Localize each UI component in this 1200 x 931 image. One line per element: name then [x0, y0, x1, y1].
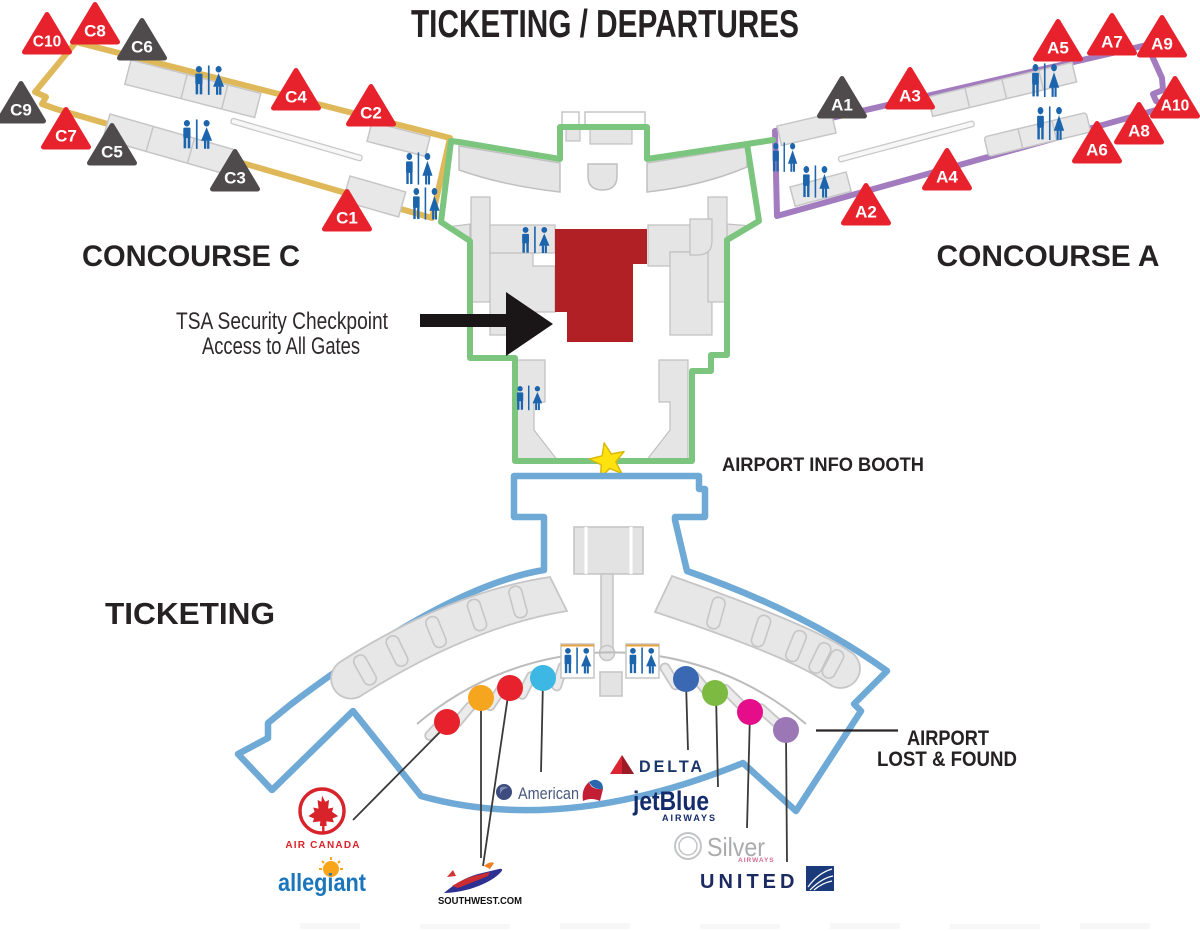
svg-text:C6: C6 [131, 38, 153, 57]
svg-text:C8: C8 [84, 22, 106, 41]
svg-text:A1: A1 [831, 96, 853, 115]
svg-text:AIRWAYS: AIRWAYS [662, 813, 717, 823]
svg-text:C10: C10 [33, 34, 61, 51]
svg-text:CONCOURSE A: CONCOURSE A [937, 240, 1160, 273]
svg-text:AIRPORT: AIRPORT [907, 727, 989, 750]
svg-text:LOST & FOUND: LOST & FOUND [877, 748, 1017, 771]
svg-text:CONCOURSE C: CONCOURSE C [82, 240, 300, 273]
svg-text:UNITED: UNITED [700, 871, 798, 893]
svg-text:AIR CANADA: AIR CANADA [285, 840, 360, 851]
svg-text:C1: C1 [336, 209, 358, 228]
svg-text:TICKETING / DEPARTURES: TICKETING / DEPARTURES [411, 3, 799, 46]
svg-text:Access to All Gates: Access to All Gates [202, 333, 360, 360]
svg-text:A5: A5 [1047, 39, 1069, 58]
svg-text:A2: A2 [855, 203, 877, 222]
svg-text:AIRPORT INFO BOOTH: AIRPORT INFO BOOTH [722, 455, 924, 476]
svg-text:A3: A3 [899, 87, 921, 106]
svg-text:TICKETING: TICKETING [105, 596, 275, 631]
svg-text:A4: A4 [936, 168, 958, 187]
svg-text:C9: C9 [10, 101, 32, 120]
svg-text:TSA Security Checkpoint: TSA Security Checkpoint [176, 308, 388, 335]
svg-text:A6: A6 [1086, 141, 1108, 160]
svg-text:C3: C3 [224, 169, 246, 188]
svg-text:A10: A10 [1161, 98, 1189, 115]
svg-text:C5: C5 [101, 143, 123, 162]
svg-text:SOUTHWEST.COM: SOUTHWEST.COM [438, 895, 522, 907]
svg-text:A7: A7 [1101, 33, 1123, 52]
svg-text:allegiant: allegiant [278, 869, 367, 897]
svg-text:C4: C4 [285, 88, 307, 107]
svg-text:DELTA: DELTA [639, 758, 705, 776]
svg-text:C2: C2 [360, 104, 382, 123]
svg-text:American: American [518, 784, 579, 803]
svg-text:A8: A8 [1128, 122, 1150, 141]
svg-text:C7: C7 [55, 127, 77, 146]
svg-text:A9: A9 [1151, 35, 1173, 54]
svg-text:jetBlue: jetBlue [632, 786, 709, 816]
svg-text:AIRWAYS: AIRWAYS [738, 857, 775, 864]
